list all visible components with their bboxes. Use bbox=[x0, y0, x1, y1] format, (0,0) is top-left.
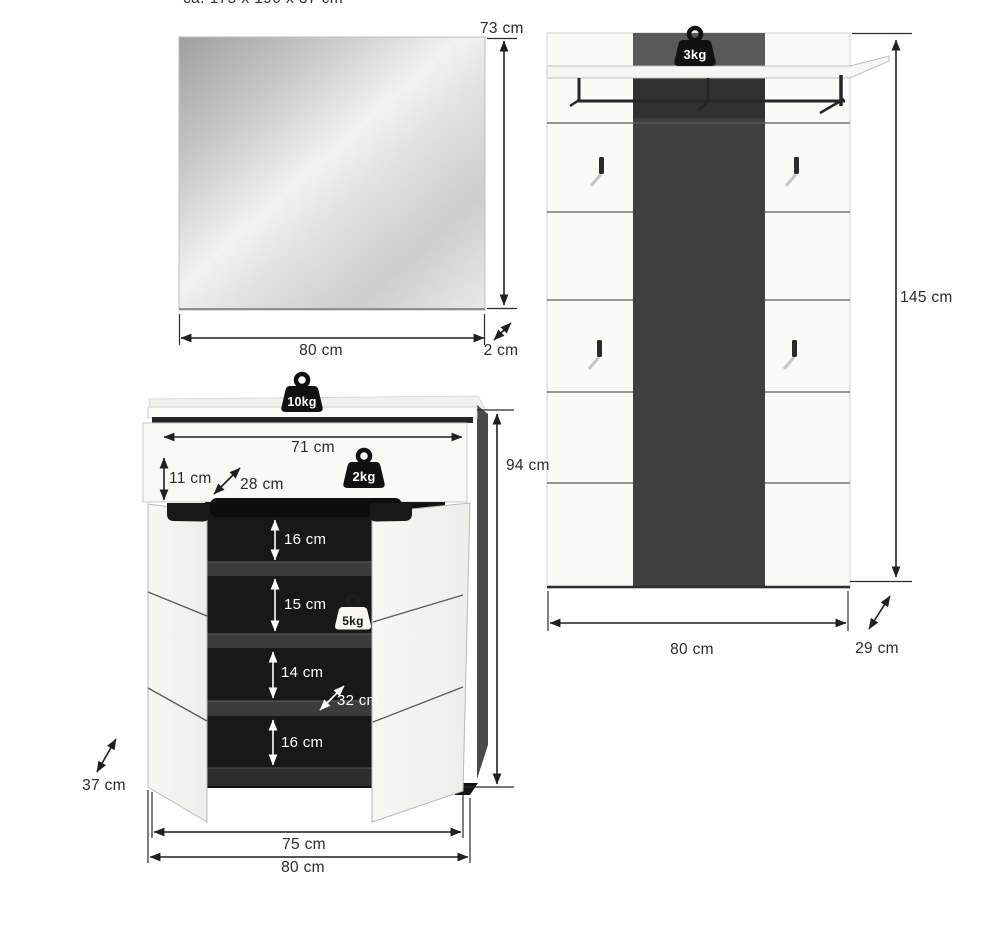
furniture-dimension-diagram: ca. 175 x 190 x 37 cm bbox=[0, 0, 984, 930]
left-door-handle-notch bbox=[167, 503, 209, 522]
inner-width-label: 71 cm bbox=[291, 439, 335, 456]
compartment1-label: 16 cm bbox=[284, 531, 326, 548]
panel-height-label: 145 cm bbox=[900, 289, 953, 306]
mirror-depth-label: 2 cm bbox=[484, 342, 519, 359]
panel-depth-arrow bbox=[869, 596, 890, 629]
drawer-height-label: 11 cm bbox=[169, 470, 212, 487]
left-door bbox=[148, 503, 209, 822]
inner-width-bottom-label: 75 cm bbox=[282, 836, 326, 853]
shelf-capacity-label: 5kg bbox=[342, 614, 364, 628]
drawer-depth-label: 28 cm bbox=[240, 476, 284, 493]
cabinet-side-panel bbox=[477, 405, 488, 779]
cabinet-depth-arrow bbox=[97, 739, 116, 772]
compartment2-label: 15 cm bbox=[284, 596, 326, 613]
cabinet-depth-label: 37 cm bbox=[82, 777, 126, 794]
drawer-front bbox=[143, 423, 467, 502]
wardrobe-panel bbox=[547, 28, 889, 588]
cabinet-height-label: 94 cm bbox=[506, 457, 550, 474]
cabinet-width-label: 80 cm bbox=[281, 859, 325, 876]
mirror-glass bbox=[179, 37, 485, 310]
right-door bbox=[370, 503, 470, 822]
panel-width-label: 80 cm bbox=[670, 641, 714, 658]
mirror-height-label: 73 cm bbox=[480, 20, 524, 37]
shelf-depth-label: 32 cm bbox=[337, 692, 379, 709]
mirror-depth-arrow bbox=[494, 323, 511, 340]
cabinet-top-gap bbox=[152, 417, 473, 423]
panel-capacity-label: 3kg bbox=[683, 47, 706, 62]
compartment3-label: 14 cm bbox=[281, 664, 323, 681]
cabinet-top-capacity-label: 10kg bbox=[287, 395, 316, 409]
panel-depth-label: 29 cm bbox=[855, 640, 899, 657]
drawer-capacity-label: 2kg bbox=[352, 469, 375, 484]
compartment4-label: 16 cm bbox=[281, 734, 323, 751]
right-door-handle-notch bbox=[370, 503, 412, 522]
mirror bbox=[179, 37, 485, 310]
mirror-width-label: 80 cm bbox=[299, 342, 343, 359]
diagram-svg: 73 cm 80 cm 2 cm bbox=[0, 0, 984, 930]
panel-stripe bbox=[633, 118, 765, 588]
